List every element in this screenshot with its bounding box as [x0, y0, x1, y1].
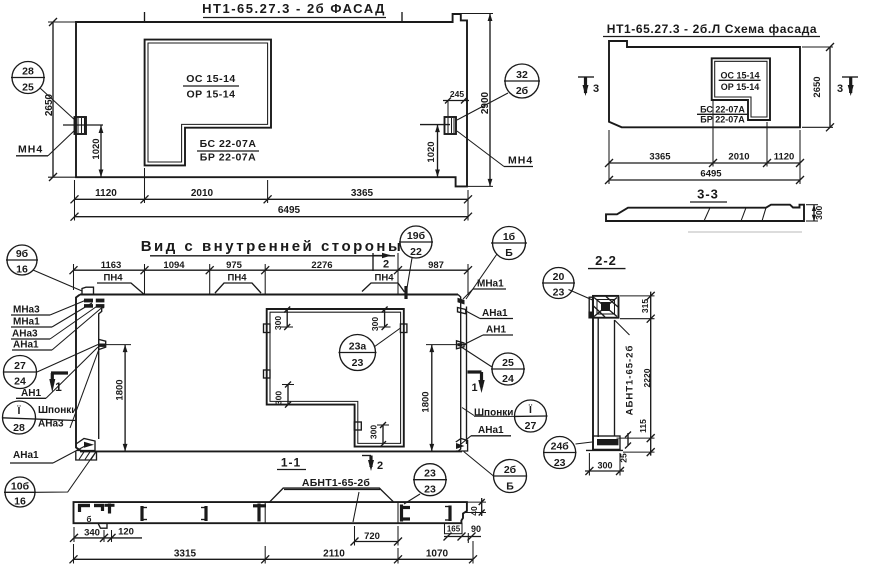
svg-text:2: 2: [383, 259, 389, 271]
svg-text:АБНТ1-65-2б: АБНТ1-65-2б: [302, 477, 370, 489]
svg-text:АНа1: АНа1: [482, 308, 508, 319]
svg-text:ПН4: ПН4: [375, 273, 395, 284]
svg-text:25: 25: [22, 82, 34, 94]
svg-text:2б: 2б: [516, 85, 529, 97]
svg-text:23: 23: [554, 457, 566, 469]
svg-text:БР 22-07А: БР 22-07А: [200, 152, 256, 164]
svg-text:ОС 15-14: ОС 15-14: [186, 73, 236, 85]
svg-text:16: 16: [16, 264, 28, 276]
svg-text:БР 22-07А: БР 22-07А: [700, 115, 745, 125]
svg-text:27: 27: [525, 420, 537, 432]
svg-text:23а: 23а: [349, 341, 367, 353]
svg-text:300: 300: [369, 425, 379, 439]
svg-text:300: 300: [274, 391, 284, 405]
svg-text:23: 23: [424, 484, 436, 496]
svg-text:6495: 6495: [700, 169, 722, 180]
svg-text:1120: 1120: [774, 152, 795, 163]
svg-text:6495: 6495: [278, 205, 301, 216]
svg-text:1б: 1б: [503, 231, 516, 243]
svg-text:3365: 3365: [649, 152, 671, 163]
svg-text:115: 115: [638, 419, 648, 433]
svg-text:300: 300: [370, 317, 380, 331]
svg-text:1020: 1020: [426, 141, 437, 162]
svg-text:2010: 2010: [728, 152, 749, 163]
svg-text:23: 23: [424, 468, 436, 480]
svg-text:АНа3: АНа3: [12, 329, 38, 340]
svg-text:300: 300: [273, 316, 283, 330]
svg-text:МН4: МН4: [18, 144, 43, 156]
svg-text:АН1: АН1: [486, 325, 506, 336]
svg-text:9б: 9б: [16, 248, 29, 260]
svg-text:1094: 1094: [163, 260, 185, 271]
svg-text:б: б: [87, 515, 92, 524]
svg-text:МНа1: МНа1: [477, 279, 504, 290]
svg-text:Б: Б: [506, 481, 514, 493]
svg-text:АНа1: АНа1: [13, 340, 39, 351]
svg-text:ПН4: ПН4: [104, 273, 124, 284]
svg-text:3: 3: [837, 83, 843, 95]
svg-text:НТ1-65.27.3 - 2б ФАСАД: НТ1-65.27.3 - 2б ФАСАД: [202, 1, 386, 16]
svg-text:27: 27: [14, 360, 26, 372]
svg-text:300: 300: [814, 205, 824, 219]
svg-text:2220: 2220: [642, 368, 652, 387]
svg-text:Шпонки: Шпонки: [38, 405, 77, 416]
svg-text:ПН4: ПН4: [228, 273, 248, 284]
svg-text:23: 23: [352, 357, 364, 369]
svg-text:АНа3: АНа3: [38, 419, 64, 430]
svg-text:24б: 24б: [551, 441, 570, 453]
svg-text:1070: 1070: [426, 549, 449, 560]
svg-text:90: 90: [471, 524, 481, 534]
svg-text:19б: 19б: [407, 230, 426, 242]
svg-text:3365: 3365: [351, 188, 374, 199]
svg-text:МН4: МН4: [508, 155, 533, 167]
svg-text:2110: 2110: [323, 549, 345, 560]
svg-text:25: 25: [502, 357, 514, 369]
svg-text:315: 315: [640, 299, 650, 313]
svg-text:1120: 1120: [95, 188, 117, 199]
svg-text:АБНТ1-65-2б: АБНТ1-65-2б: [625, 345, 636, 416]
svg-text:23: 23: [553, 287, 565, 299]
svg-text:3315: 3315: [174, 549, 197, 560]
svg-text:987: 987: [428, 260, 444, 271]
svg-text:22: 22: [410, 246, 422, 258]
svg-text:Вид с внутренней стороны: Вид с внутренней стороны: [141, 238, 404, 255]
svg-text:БС 22-07А: БС 22-07А: [700, 105, 745, 115]
svg-text:120: 120: [118, 527, 134, 538]
svg-text:2010: 2010: [191, 188, 214, 199]
svg-text:28: 28: [22, 66, 34, 78]
svg-text:1: 1: [55, 380, 62, 394]
svg-text:2276: 2276: [311, 260, 332, 271]
svg-text:АН1: АН1: [21, 388, 41, 399]
svg-text:1020: 1020: [91, 138, 102, 159]
svg-text:24: 24: [502, 373, 514, 385]
svg-text:720: 720: [364, 531, 380, 542]
svg-text:3: 3: [593, 83, 599, 95]
svg-text:АНа1: АНа1: [478, 425, 504, 436]
svg-text:1800: 1800: [421, 391, 432, 412]
svg-text:2: 2: [377, 460, 383, 472]
svg-text:300: 300: [597, 461, 612, 471]
svg-text:340: 340: [84, 528, 100, 539]
svg-text:245: 245: [450, 89, 464, 99]
svg-text:3-3: 3-3: [697, 187, 719, 202]
svg-text:БС 22-07А: БС 22-07А: [200, 138, 257, 150]
svg-text:165: 165: [447, 525, 461, 534]
svg-text:16: 16: [14, 496, 26, 508]
svg-text:40: 40: [469, 506, 479, 516]
svg-text:АНа1: АНа1: [13, 450, 39, 461]
svg-text:1-1: 1-1: [281, 456, 301, 470]
svg-text:20: 20: [553, 271, 565, 283]
svg-text:МНа3: МНа3: [13, 305, 40, 316]
svg-text:ОР 15-14: ОР 15-14: [187, 89, 236, 101]
svg-text:НТ1-65.27.3 - 2б.Л Схема фасад: НТ1-65.27.3 - 2б.Л Схема фасада: [607, 22, 817, 36]
svg-text:1800: 1800: [115, 379, 126, 400]
svg-text:32: 32: [516, 69, 528, 81]
svg-text:975: 975: [226, 260, 243, 271]
svg-text:ОС 15-14: ОС 15-14: [720, 70, 759, 80]
svg-text:Б: Б: [505, 247, 513, 259]
svg-text:2-2: 2-2: [595, 253, 617, 268]
svg-text:28: 28: [13, 422, 25, 434]
svg-text:2б: 2б: [504, 464, 517, 476]
svg-text:10б: 10б: [11, 480, 30, 492]
svg-text:1163: 1163: [101, 260, 122, 271]
svg-text:МНа1: МНа1: [13, 317, 40, 328]
svg-text:2650: 2650: [812, 76, 823, 97]
svg-text:1: 1: [471, 382, 477, 394]
svg-text:24: 24: [14, 376, 26, 388]
svg-text:ОР 15-14: ОР 15-14: [721, 82, 760, 92]
